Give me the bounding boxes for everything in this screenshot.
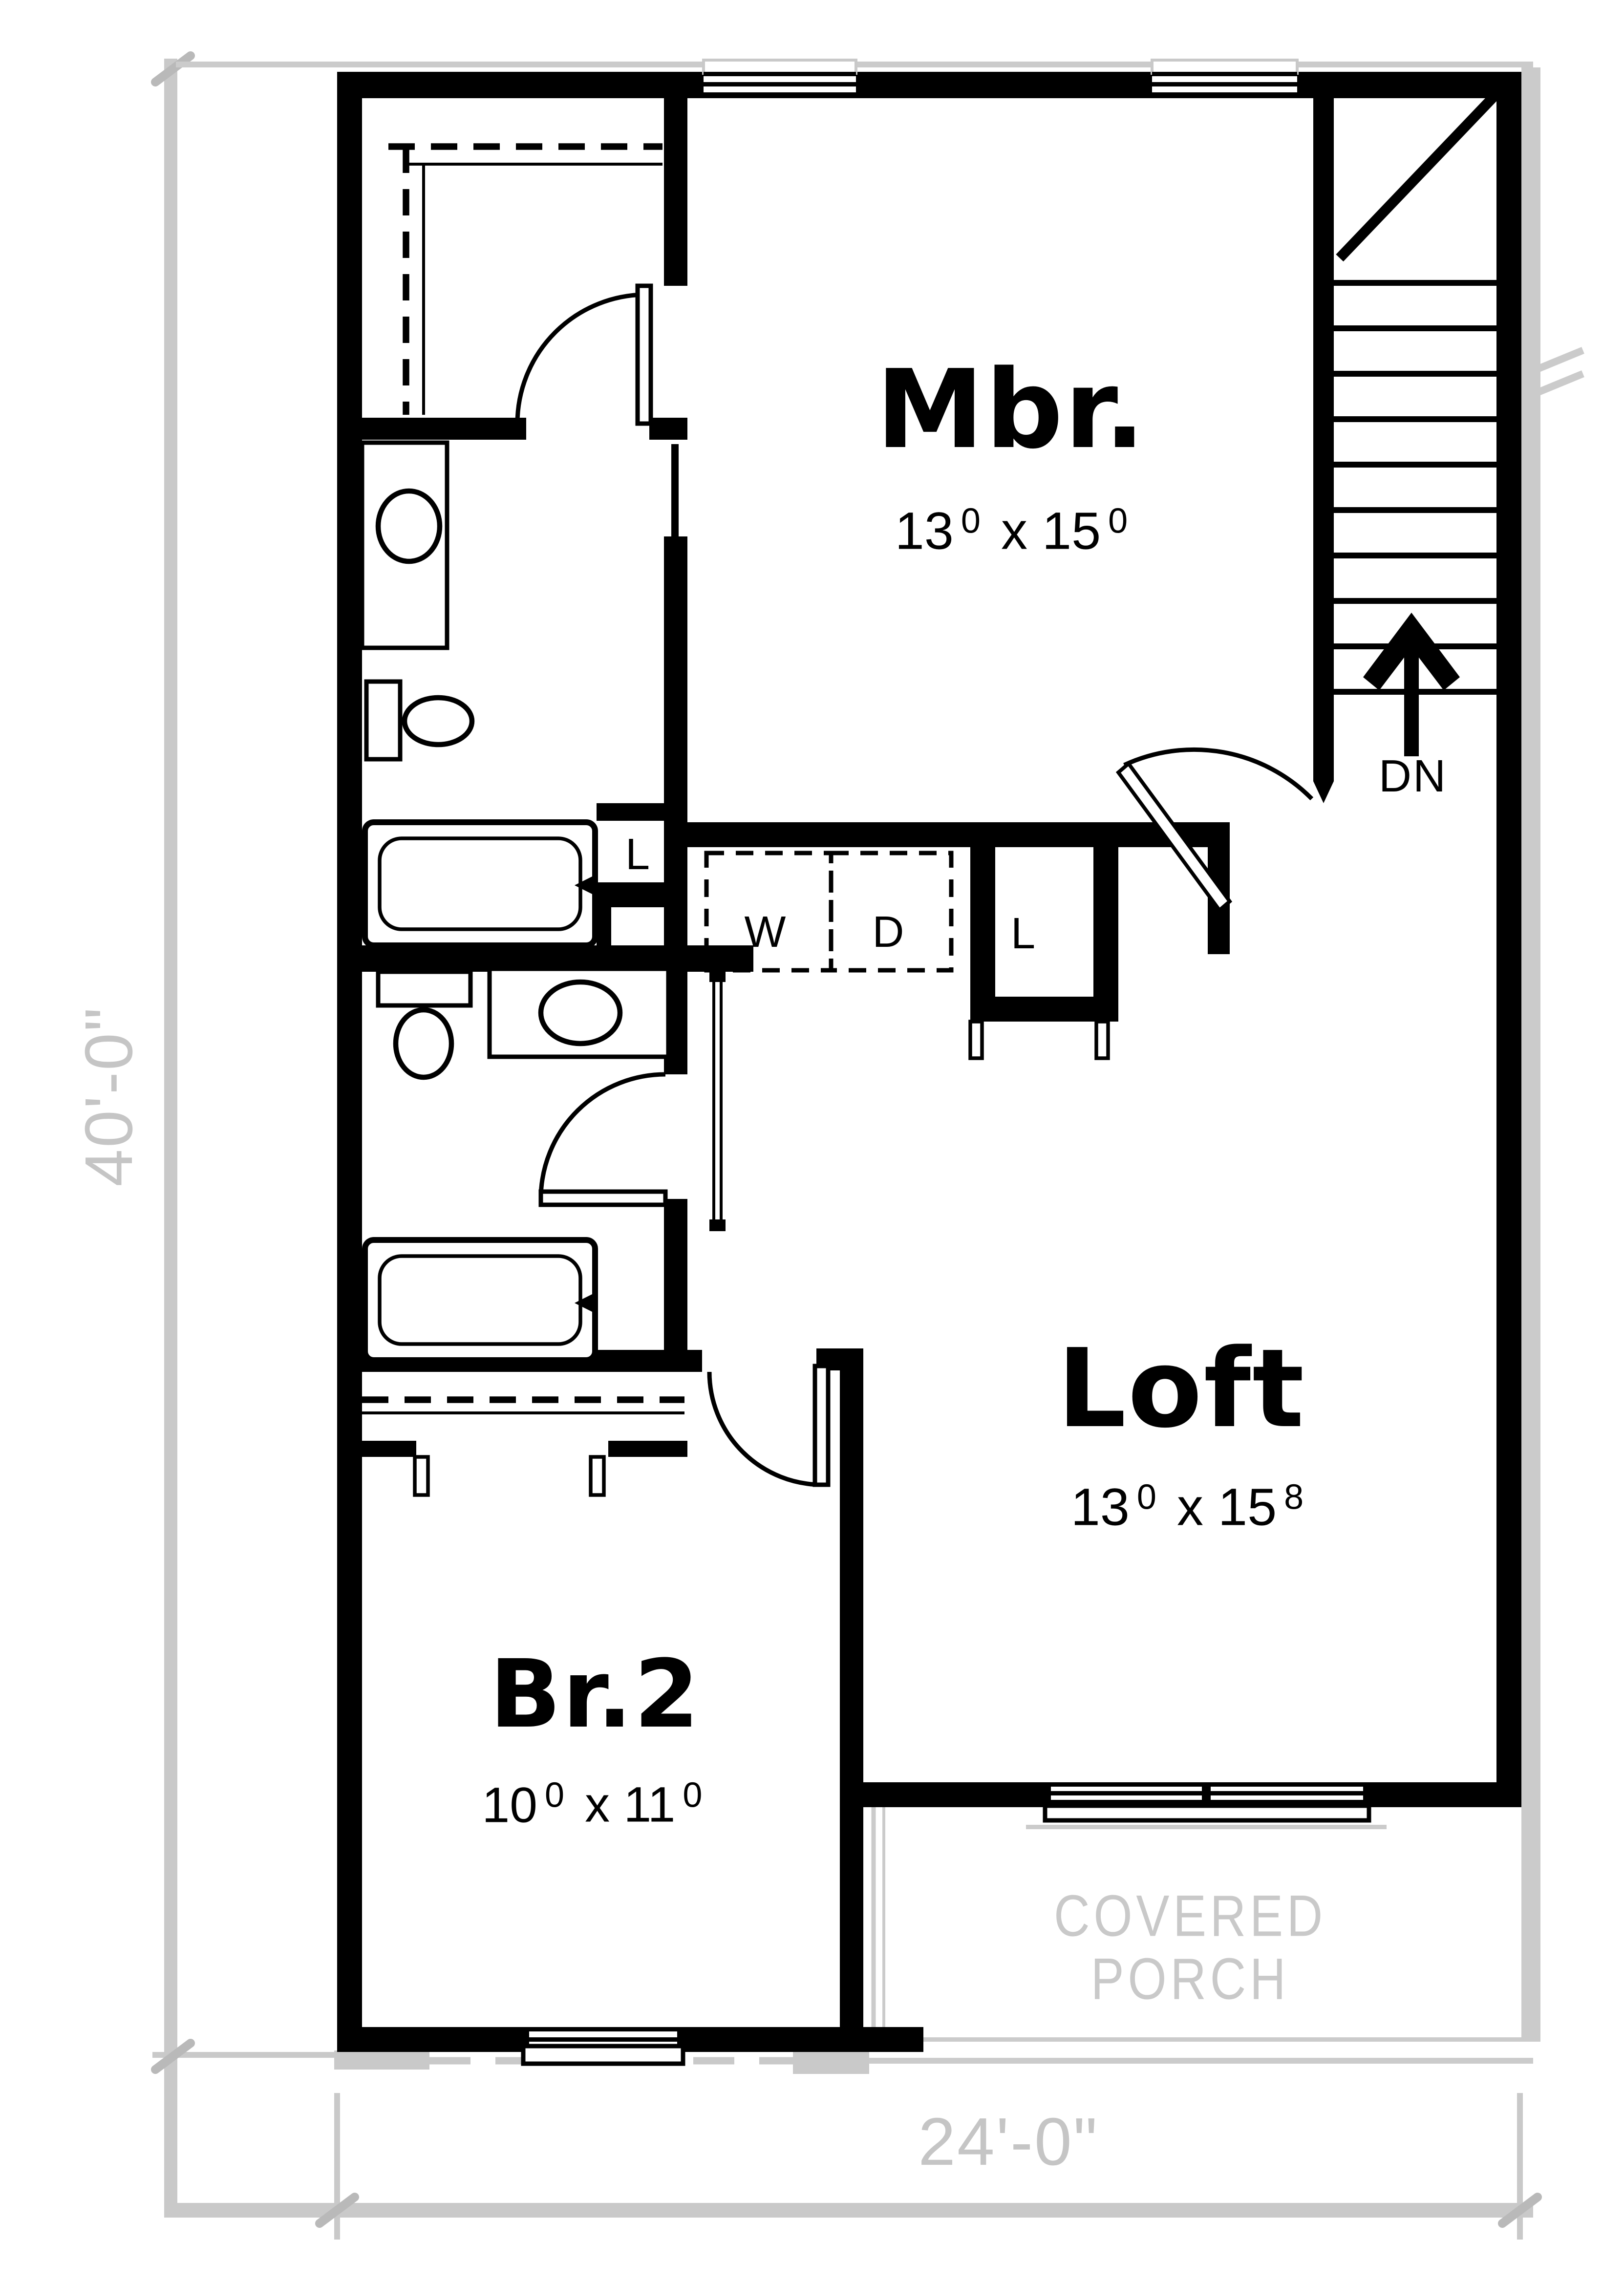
left-wall	[337, 72, 362, 2052]
bottom-dimension-line	[164, 2203, 1533, 2218]
bedroom2-label: Br.2	[490, 1642, 701, 1750]
overall-depth-dimension: 40'-0"	[69, 1006, 148, 1187]
br2-dim-inch-2: 0	[683, 1776, 702, 1816]
br2-dim-feet-2: x 11	[585, 1778, 675, 1834]
right-wall	[1496, 72, 1521, 1807]
overall-width-dimension: 24'-0"	[918, 2102, 1099, 2181]
top-wall-seg-3	[1297, 72, 1521, 98]
toilet-1-tank	[366, 682, 400, 759]
porch-label-line-2: PORCH	[1054, 1949, 1326, 2013]
br2-dim-feet-1: 10	[482, 1778, 537, 1834]
tub-2-inner	[380, 1256, 580, 1344]
loft-dimensions: 130x 158	[1071, 1475, 1303, 1538]
bath2-door	[541, 1074, 665, 1205]
linen-bath-post	[597, 907, 611, 948]
stair-guard-wall-tip	[1313, 781, 1334, 803]
linen-closet-bath-label: L	[625, 831, 650, 881]
bath1-opening-jamb-line	[671, 444, 679, 536]
mbr-closet-right-wall	[664, 98, 687, 286]
bedroom2-dimensions: 100x 110	[482, 1773, 703, 1836]
br2-bottom-wall-seg-1	[337, 2027, 529, 2052]
right-siding-band	[1521, 67, 1540, 2042]
br2-loft-dividing-wall	[840, 1348, 863, 2052]
hall-loft-thin-wall-line-1	[712, 972, 715, 1228]
stairs	[1334, 94, 1496, 756]
stair-guard-wall	[1313, 98, 1334, 781]
toilet-1-bowl	[405, 698, 472, 745]
toilet-2-tank	[378, 972, 470, 1005]
laundry-closet-bottom-wall	[970, 997, 1118, 1022]
master-bath	[362, 443, 595, 945]
laundry-jamb-right	[1096, 1022, 1108, 1058]
master-dim-feet-1: 13	[895, 501, 954, 561]
loft-bottom-wall-seg-2	[1363, 1782, 1521, 1807]
loft-window-sill-line	[1026, 1825, 1387, 1829]
mbr-closet-bottom-wall-1	[337, 418, 526, 440]
porch-bottom-line	[872, 2037, 1533, 2042]
stair-break-line	[1340, 94, 1496, 258]
mbr-closet-door	[517, 286, 651, 424]
loft-double-window	[1045, 1782, 1369, 1820]
br2-closet-bottom-wall-2	[608, 1441, 687, 1457]
loft-bottom-wall-seg-1	[855, 1782, 1051, 1807]
laundry-jamb-left	[970, 1022, 982, 1058]
master-bedroom-label: Mbr.	[876, 347, 1147, 473]
stairs-down-arrow	[1363, 613, 1460, 756]
br2-entry-door	[709, 1366, 828, 1485]
right-break-mark-1	[1533, 350, 1583, 371]
floor-plan-page: Mbr. 130x 150 Loft 130x 158 Br.2 100x 11…	[0, 0, 1624, 2285]
right-break-mark-2	[1533, 374, 1583, 394]
linen-closet-laundry-label: L	[1011, 910, 1035, 960]
top-window-2	[1152, 60, 1297, 98]
top-wall-seg-1	[337, 72, 704, 98]
br2-closet-bottom-wall-1	[362, 1441, 416, 1457]
mbr-bottom-wall	[664, 822, 1230, 847]
extension-line-right-corner	[1517, 2093, 1523, 2240]
porch-label-line-1: COVERED	[1054, 1886, 1326, 1949]
tub-1-inner	[380, 838, 580, 929]
floor-plan-drawing	[0, 0, 1624, 2285]
porch-step-line	[869, 2058, 1533, 2064]
laundry-closet-left-wall	[970, 847, 995, 1022]
left-dimension-line	[164, 59, 177, 2218]
top-window-1	[704, 60, 856, 98]
bath-2	[365, 969, 668, 1360]
top-wall-seg-2	[856, 72, 1152, 98]
loft-label: Loft	[1057, 1326, 1306, 1452]
linen-bath-top-wall	[597, 803, 687, 821]
laundry-closet-right-wall	[1093, 847, 1118, 1022]
br2-closet-jamb-left	[415, 1457, 428, 1495]
master-dim-inch-2: 0	[1108, 502, 1128, 542]
toilet-2-bowl	[396, 1010, 451, 1077]
hall-loft-thin-wall-cap-bottom	[709, 1219, 726, 1231]
hall-loft-thin-wall-line-2	[720, 972, 723, 1228]
sink-2	[541, 982, 620, 1044]
br2-dim-inch-1: 0	[545, 1776, 564, 1816]
loft-dim-feet-1: 13	[1071, 1477, 1130, 1537]
loft-dim-feet-2: x 15	[1177, 1477, 1277, 1537]
central-wall-lower	[664, 1199, 687, 1370]
corner-stoop-block	[334, 2050, 429, 2070]
linen-bath-bottom-wall	[597, 882, 687, 907]
loft-dim-inch-2: 8	[1284, 1478, 1303, 1518]
window-mullion	[1202, 1782, 1211, 1807]
br2-closet-jamb-right	[591, 1457, 604, 1495]
br2-window	[523, 2027, 683, 2064]
stairs-down-label: DN	[1379, 750, 1447, 803]
sink-1	[378, 491, 440, 561]
extension-line-left-corner	[334, 2093, 340, 2240]
washer-label: W	[745, 909, 786, 959]
master-dim-inch-1: 0	[961, 502, 981, 542]
loft-dim-inch-1: 0	[1137, 1478, 1156, 1518]
hall-loft-thin-wall-cap-top	[709, 972, 726, 982]
br2-bottom-wall-seg-2	[677, 2027, 923, 2052]
mbr-closet-bottom-wall-2	[649, 418, 687, 440]
covered-porch-label: COVERED PORCH	[1054, 1886, 1326, 2012]
master-dim-feet-2: x 15	[1001, 501, 1101, 561]
dryer-label: D	[872, 909, 904, 959]
master-bedroom-dimensions: 130x 150	[895, 499, 1128, 562]
